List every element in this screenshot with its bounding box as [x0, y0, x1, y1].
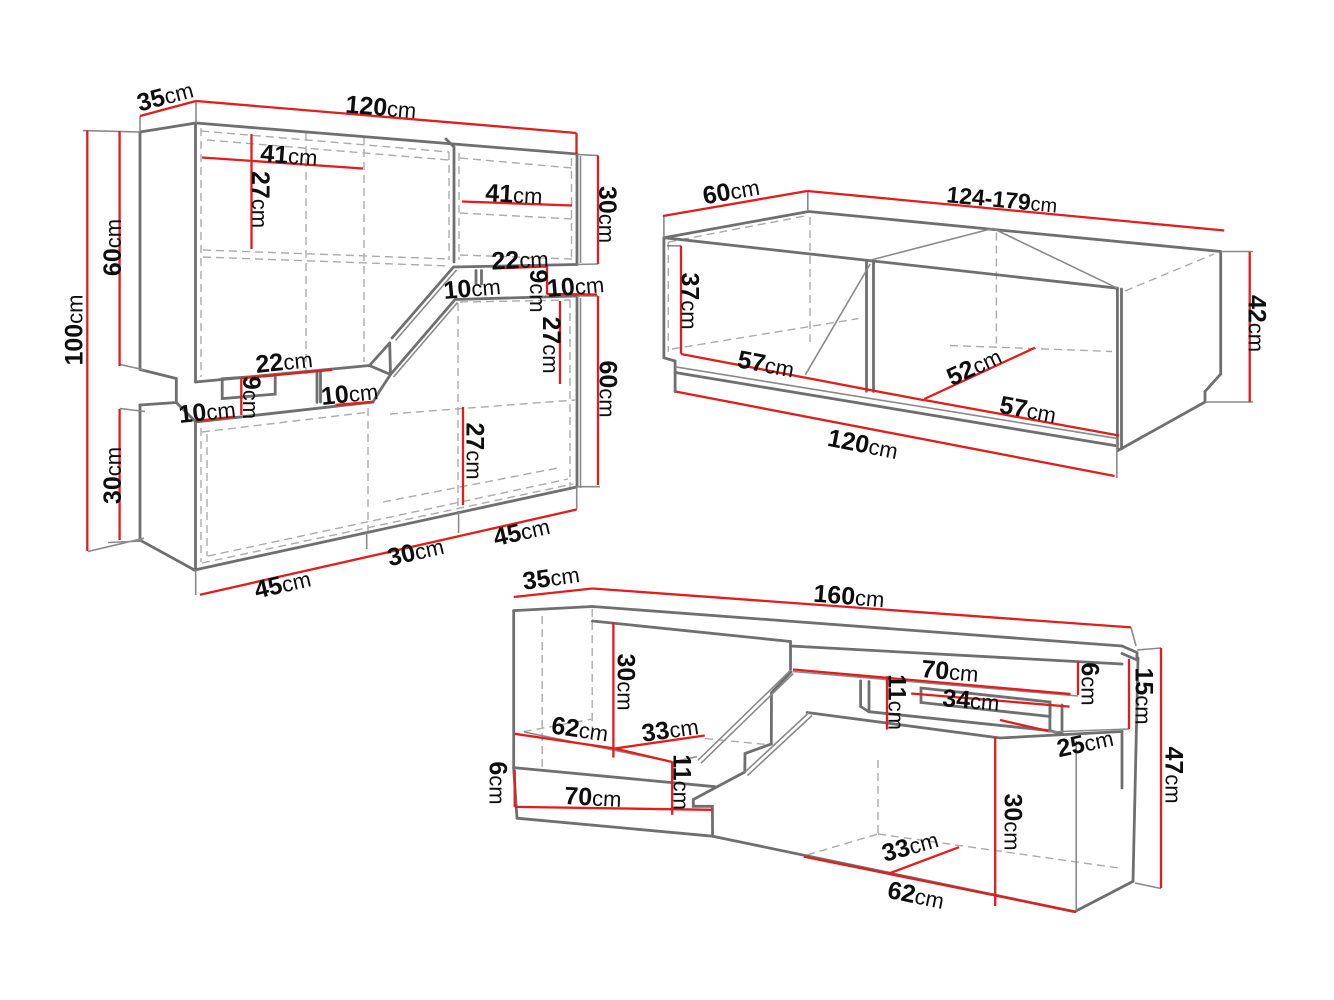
- svg-text:37cm: 37cm: [676, 272, 704, 329]
- svg-text:41cm: 41cm: [485, 179, 544, 210]
- svg-text:100cm: 100cm: [61, 294, 89, 365]
- svg-text:60cm: 60cm: [594, 360, 622, 417]
- svg-text:41cm: 41cm: [259, 140, 318, 172]
- svg-text:27cm: 27cm: [537, 316, 565, 373]
- svg-text:15cm: 15cm: [1130, 667, 1158, 724]
- svg-text:6cm: 6cm: [1076, 662, 1104, 705]
- svg-text:60cm: 60cm: [99, 219, 127, 276]
- svg-text:6cm: 6cm: [484, 761, 512, 804]
- svg-text:30cm: 30cm: [99, 447, 127, 504]
- svg-text:30cm: 30cm: [612, 653, 640, 710]
- svg-text:11cm: 11cm: [883, 674, 911, 730]
- svg-text:27cm: 27cm: [246, 171, 274, 228]
- svg-text:11cm: 11cm: [668, 754, 696, 810]
- svg-text:70cm: 70cm: [564, 782, 623, 813]
- svg-text:47cm: 47cm: [1160, 746, 1188, 803]
- svg-text:30cm: 30cm: [999, 793, 1027, 850]
- svg-text:42cm: 42cm: [1243, 295, 1271, 352]
- svg-text:9cm: 9cm: [237, 376, 265, 419]
- svg-text:30cm: 30cm: [593, 186, 621, 243]
- svg-text:27cm: 27cm: [461, 422, 489, 479]
